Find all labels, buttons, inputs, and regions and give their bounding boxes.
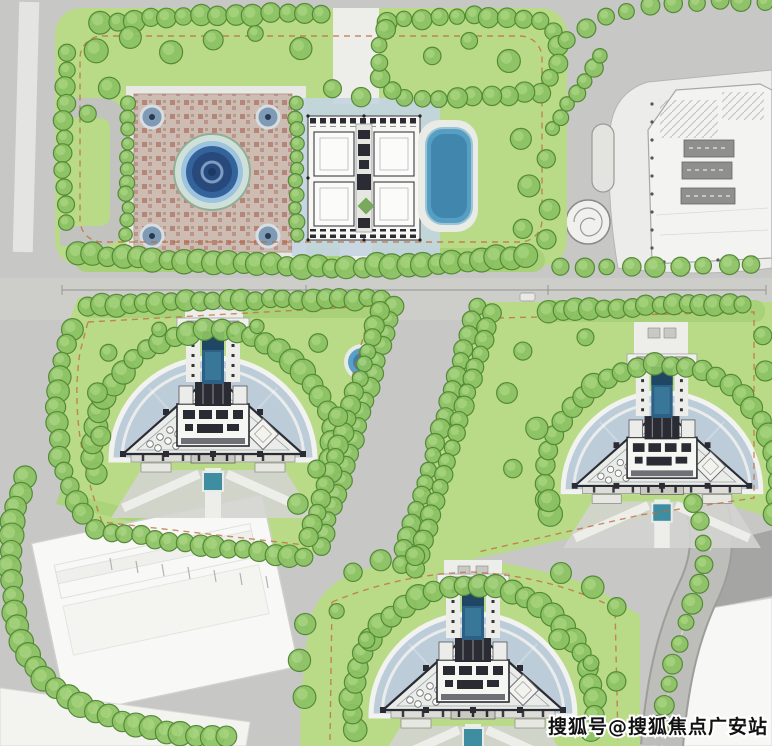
tree-highlight bbox=[3, 543, 14, 554]
tree-highlight bbox=[534, 86, 544, 96]
tree-highlight bbox=[180, 325, 192, 337]
tree-highlight bbox=[366, 331, 375, 340]
tree-highlight bbox=[354, 90, 364, 100]
office-tower-footprint bbox=[648, 84, 772, 264]
tree-highlight bbox=[281, 548, 292, 559]
tree-highlight bbox=[552, 56, 561, 65]
tree-highlight bbox=[293, 230, 300, 237]
tree-highlight bbox=[82, 107, 90, 115]
tree-highlight bbox=[56, 113, 66, 123]
tree-highlight bbox=[206, 32, 216, 42]
tree-highlight bbox=[367, 318, 377, 328]
tree-highlight bbox=[258, 335, 269, 346]
tree-highlight bbox=[542, 443, 551, 452]
tree-highlight bbox=[111, 15, 120, 24]
tree-highlight bbox=[434, 481, 442, 489]
tree-highlight bbox=[162, 253, 171, 262]
tree-highlight bbox=[461, 386, 469, 394]
tree-highlight bbox=[325, 261, 334, 270]
tree-highlight bbox=[52, 368, 63, 379]
tree-highlight bbox=[745, 258, 754, 267]
tree-highlight bbox=[355, 373, 363, 381]
tree-highlight bbox=[534, 14, 543, 23]
tree-highlight bbox=[291, 652, 302, 663]
tree-highlight bbox=[625, 260, 634, 269]
tree-highlight bbox=[674, 260, 684, 270]
tree-highlight bbox=[101, 249, 111, 259]
tree-highlight bbox=[268, 547, 278, 557]
tree-highlight bbox=[646, 355, 657, 366]
tree-highlight bbox=[694, 514, 703, 523]
central-fountain bbox=[174, 134, 250, 210]
tree-highlight bbox=[758, 363, 768, 373]
tree-highlight bbox=[148, 533, 157, 542]
tree-highlight bbox=[190, 252, 202, 264]
tree-highlight bbox=[319, 291, 329, 301]
tree-highlight bbox=[442, 394, 452, 404]
tree-highlight bbox=[698, 558, 707, 567]
tree-highlight bbox=[194, 7, 205, 18]
tree-highlight bbox=[395, 558, 404, 567]
tree-highlight bbox=[52, 449, 63, 460]
tree-highlight bbox=[290, 496, 300, 506]
tree-highlight bbox=[760, 426, 772, 438]
tree-highlight bbox=[122, 29, 133, 40]
tree-highlight bbox=[52, 432, 62, 442]
tree-highlight bbox=[518, 590, 528, 600]
tree-highlight bbox=[502, 89, 512, 99]
tree-highlight bbox=[177, 10, 186, 19]
tree-highlight bbox=[373, 304, 383, 314]
tree-highlight bbox=[500, 10, 510, 20]
tree-highlight bbox=[429, 494, 438, 503]
tree-highlight bbox=[329, 451, 338, 460]
tree-highlight bbox=[450, 426, 459, 435]
tree-highlight bbox=[65, 321, 76, 332]
tree-highlight bbox=[276, 292, 285, 301]
tree-highlight bbox=[427, 449, 435, 457]
tree-highlight bbox=[250, 28, 258, 36]
tree-highlight bbox=[517, 84, 527, 94]
tree-highlight bbox=[443, 253, 455, 265]
tree-highlight bbox=[415, 488, 424, 497]
tree-highlight bbox=[49, 414, 60, 425]
tree-highlight bbox=[695, 363, 705, 373]
tree-highlight bbox=[9, 618, 20, 629]
tree-highlight bbox=[538, 477, 547, 486]
watermark-text: 搜狐号@搜狐焦点广安站 bbox=[548, 715, 768, 738]
tree-highlight bbox=[457, 399, 467, 409]
tree-highlight bbox=[332, 291, 342, 301]
tree-highlight bbox=[57, 464, 66, 473]
tree-highlight bbox=[423, 507, 433, 517]
tree-highlight bbox=[561, 34, 569, 42]
tree-highlight bbox=[553, 565, 563, 575]
tree-highlight bbox=[587, 690, 598, 701]
tree-highlight bbox=[744, 399, 755, 410]
tree-highlight bbox=[530, 595, 543, 608]
tree-highlight bbox=[312, 388, 323, 399]
tree-highlight bbox=[457, 579, 467, 589]
tree-highlight bbox=[600, 10, 608, 18]
tree-highlight bbox=[373, 552, 384, 563]
tree-highlight bbox=[314, 492, 324, 502]
tree-highlight bbox=[293, 40, 304, 51]
tree-highlight bbox=[540, 303, 551, 314]
tree-highlight bbox=[722, 257, 732, 267]
tree-highlight bbox=[579, 76, 586, 83]
tree-highlight bbox=[571, 87, 579, 95]
tree-highlight bbox=[501, 52, 512, 63]
tree-highlight bbox=[529, 420, 540, 431]
tree-highlight bbox=[462, 328, 472, 338]
tree-highlight bbox=[122, 152, 129, 159]
tree-highlight bbox=[516, 344, 525, 353]
site-plan: 搜狐号@搜狐焦点广安站 bbox=[0, 0, 772, 746]
tree-highlight bbox=[452, 11, 460, 19]
tree-highlight bbox=[175, 252, 187, 264]
tree-highlight bbox=[426, 49, 435, 58]
tree-highlight bbox=[292, 152, 298, 158]
tree-highlight bbox=[55, 354, 64, 363]
tree-highlight bbox=[443, 579, 454, 590]
tree-highlight bbox=[219, 729, 229, 739]
tree-highlight bbox=[419, 477, 427, 485]
tree-highlight bbox=[134, 528, 143, 537]
tree-highlight bbox=[585, 376, 597, 388]
tree-highlight bbox=[554, 260, 563, 269]
tree-highlight bbox=[331, 438, 341, 448]
tree-highlight bbox=[6, 589, 16, 599]
tree-highlight bbox=[123, 296, 133, 306]
tree-highlight bbox=[450, 90, 460, 100]
tree-highlight bbox=[56, 146, 65, 155]
tree-highlight bbox=[344, 398, 354, 408]
tree-highlight bbox=[503, 250, 514, 261]
tree-highlight bbox=[291, 216, 299, 224]
tree-highlight bbox=[410, 503, 418, 511]
tree-highlight bbox=[552, 631, 562, 641]
tree-highlight bbox=[305, 377, 315, 387]
tree-highlight bbox=[13, 632, 25, 644]
east-entrance bbox=[634, 322, 688, 358]
tree-highlight bbox=[71, 695, 84, 708]
tree-highlight bbox=[137, 296, 146, 305]
tree-highlight bbox=[206, 294, 215, 303]
tree-highlight bbox=[478, 333, 488, 343]
tree-highlight bbox=[473, 251, 485, 263]
tree-highlight bbox=[13, 485, 24, 496]
tree-highlight bbox=[468, 360, 477, 369]
tree-highlight bbox=[252, 544, 262, 554]
tree-highlight bbox=[548, 123, 555, 130]
tree-highlight bbox=[61, 64, 69, 72]
tree-highlight bbox=[17, 469, 28, 480]
tree-highlight bbox=[291, 203, 297, 209]
tree-highlight bbox=[35, 669, 47, 681]
tree-highlight bbox=[449, 369, 459, 379]
tree-highlight bbox=[361, 634, 369, 642]
tree-highlight bbox=[292, 164, 299, 171]
tree-highlight bbox=[446, 383, 455, 392]
tree-highlight bbox=[120, 188, 128, 196]
tree-highlight bbox=[481, 10, 491, 20]
tree-highlight bbox=[384, 609, 394, 619]
tree-highlight bbox=[305, 517, 315, 527]
tree-highlight bbox=[123, 124, 130, 131]
tree-highlight bbox=[416, 533, 426, 543]
tree-highlight bbox=[539, 232, 549, 242]
tree-highlight bbox=[555, 112, 563, 120]
tree-highlight bbox=[244, 7, 255, 18]
tree-highlight bbox=[555, 414, 565, 424]
tree-highlight bbox=[582, 300, 593, 311]
tree-highlight bbox=[461, 254, 471, 264]
tree-highlight bbox=[609, 674, 619, 684]
tree-highlight bbox=[193, 294, 203, 304]
tree-highlight bbox=[116, 247, 128, 259]
tree-highlight bbox=[468, 8, 477, 17]
tree-highlight bbox=[415, 12, 425, 22]
tree-highlight bbox=[305, 292, 316, 303]
tree-highlight bbox=[124, 203, 130, 209]
tree-highlight bbox=[485, 89, 495, 99]
tree-highlight bbox=[722, 296, 732, 306]
tree-highlight bbox=[102, 346, 110, 354]
tree-highlight bbox=[302, 530, 312, 540]
tree-highlight bbox=[517, 246, 529, 258]
tree-highlight bbox=[122, 177, 130, 185]
tree-highlight bbox=[583, 677, 594, 688]
tree-highlight bbox=[61, 217, 69, 225]
tree-highlight bbox=[296, 688, 307, 699]
tree-highlight bbox=[50, 383, 61, 394]
tree-highlight bbox=[290, 113, 297, 120]
tree-highlight bbox=[433, 10, 442, 19]
tree-highlight bbox=[326, 82, 335, 91]
tree-highlight bbox=[409, 588, 421, 600]
tree-highlight bbox=[149, 295, 160, 306]
tree-highlight bbox=[578, 260, 588, 270]
tree-highlight bbox=[249, 255, 260, 266]
tree-highlight bbox=[292, 123, 299, 130]
tree-highlight bbox=[485, 306, 494, 315]
tree-highlight bbox=[615, 365, 624, 374]
tree-highlight bbox=[471, 300, 479, 308]
tree-highlight bbox=[252, 321, 259, 328]
tree-highlight bbox=[154, 324, 161, 331]
tree-highlight bbox=[400, 529, 410, 539]
tree-highlight bbox=[517, 12, 526, 21]
tree-highlight bbox=[162, 535, 171, 544]
tree-highlight bbox=[264, 255, 275, 266]
tree-highlight bbox=[291, 98, 298, 105]
tree-highlight bbox=[655, 299, 664, 308]
tree-highlight bbox=[108, 297, 119, 308]
tree-highlight bbox=[311, 506, 320, 515]
tree-highlight bbox=[373, 71, 383, 81]
spiral-landscape-mound bbox=[566, 200, 610, 244]
tree-highlight bbox=[465, 313, 474, 322]
tree-highlight bbox=[709, 370, 719, 380]
tree-highlight bbox=[90, 385, 100, 395]
tree-highlight bbox=[271, 342, 282, 353]
tree-highlight bbox=[422, 521, 431, 530]
tree-highlight bbox=[123, 139, 129, 145]
tree-highlight bbox=[100, 707, 111, 718]
tree-highlight bbox=[229, 7, 239, 17]
tree-highlight bbox=[60, 97, 69, 106]
tree-highlight bbox=[664, 359, 673, 368]
tree-highlight bbox=[63, 479, 72, 488]
tree-highlight bbox=[319, 478, 328, 487]
tree-highlight bbox=[204, 728, 216, 740]
tree-highlight bbox=[126, 13, 137, 24]
tree-highlight bbox=[118, 527, 127, 536]
tree-highlight bbox=[291, 293, 300, 302]
tree-highlight bbox=[513, 131, 523, 141]
tree-highlight bbox=[121, 229, 128, 236]
tree-highlight bbox=[70, 244, 82, 256]
tree-highlight bbox=[163, 43, 174, 54]
tree-highlight bbox=[361, 291, 370, 300]
tree-highlight bbox=[58, 181, 66, 189]
tree-highlight bbox=[692, 577, 701, 586]
tree-highlight bbox=[210, 8, 220, 18]
tree-highlight bbox=[567, 301, 578, 312]
tree-highlight bbox=[298, 616, 309, 627]
tree-highlight bbox=[249, 294, 258, 303]
tree-highlight bbox=[165, 295, 174, 304]
tree-highlight bbox=[19, 646, 31, 658]
tree-highlight bbox=[143, 718, 155, 730]
tree-highlight bbox=[437, 468, 446, 477]
tree-highlight bbox=[94, 296, 105, 307]
traffic-island bbox=[592, 124, 614, 192]
tree-highlight bbox=[601, 261, 609, 269]
tree-highlight bbox=[310, 462, 319, 471]
tree-highlight bbox=[755, 414, 764, 423]
tree-highlight bbox=[638, 298, 648, 308]
tree-highlight bbox=[237, 543, 246, 552]
tree-highlight bbox=[408, 549, 418, 559]
tree-highlight bbox=[626, 301, 635, 310]
tree-highlight bbox=[338, 259, 349, 270]
tree-highlight bbox=[331, 409, 341, 419]
tree-highlight bbox=[196, 321, 207, 332]
tree-highlight bbox=[621, 5, 629, 13]
tree-highlight bbox=[222, 542, 231, 551]
tree-highlight bbox=[587, 61, 596, 70]
tree-highlight bbox=[315, 8, 324, 17]
exhibition-building bbox=[306, 114, 421, 241]
site-plan-drawing: 搜狐号@搜狐焦点广安站 bbox=[0, 0, 772, 746]
tree-highlight bbox=[123, 98, 130, 105]
tree-highlight bbox=[685, 596, 695, 606]
tree-highlight bbox=[698, 537, 706, 545]
tree-highlight bbox=[290, 175, 297, 182]
tree-highlight bbox=[143, 251, 155, 263]
tree-highlight bbox=[320, 403, 330, 413]
tree-highlight bbox=[178, 292, 189, 303]
tree-highlight bbox=[433, 421, 443, 431]
tree-highlight bbox=[426, 584, 436, 594]
tree-highlight bbox=[4, 572, 15, 583]
tree-highlight bbox=[455, 355, 463, 363]
tree-highlight bbox=[433, 93, 441, 101]
tree-highlight bbox=[171, 724, 183, 736]
tree-highlight bbox=[312, 336, 321, 345]
tree-highlight bbox=[310, 258, 321, 269]
tree-highlight bbox=[487, 248, 499, 260]
tree-highlight bbox=[230, 325, 240, 335]
tree-highlight bbox=[736, 387, 747, 398]
tree-highlight bbox=[291, 189, 298, 196]
tree-highlight bbox=[59, 132, 67, 140]
tree-highlight bbox=[106, 526, 115, 535]
tree-highlight bbox=[280, 259, 290, 269]
tree-highlight bbox=[487, 577, 499, 589]
tree-highlight bbox=[598, 302, 607, 311]
tree-highlight bbox=[674, 638, 682, 646]
tree-highlight bbox=[282, 6, 291, 15]
tree-highlight bbox=[398, 13, 406, 21]
tree-highlight bbox=[544, 71, 552, 79]
tree-highlight bbox=[580, 21, 589, 30]
tree-highlight bbox=[373, 56, 381, 64]
tree-highlight bbox=[686, 496, 695, 505]
tree-highlight bbox=[475, 348, 483, 356]
tree-highlight bbox=[347, 292, 358, 303]
tree-highlight bbox=[453, 414, 462, 423]
tree-highlight bbox=[362, 346, 370, 354]
tree-highlight bbox=[115, 364, 127, 376]
tree-highlight bbox=[1, 558, 13, 570]
tree-highlight bbox=[542, 202, 552, 212]
tree-highlight bbox=[81, 299, 90, 308]
tree-highlight bbox=[439, 410, 448, 419]
tree-highlight bbox=[346, 565, 355, 574]
tree-highlight bbox=[56, 164, 64, 172]
tree-highlight bbox=[88, 522, 98, 532]
tree-highlight bbox=[69, 493, 80, 504]
tree-highlight bbox=[554, 618, 566, 630]
tree-highlight bbox=[122, 164, 129, 171]
tree-highlight bbox=[423, 464, 431, 472]
tree-highlight bbox=[331, 605, 339, 613]
tree-highlight bbox=[101, 80, 112, 91]
tree-highlight bbox=[447, 442, 455, 450]
tree-highlight bbox=[189, 728, 200, 739]
tree-highlight bbox=[92, 14, 103, 25]
tree-highlight bbox=[193, 538, 204, 549]
tree-highlight bbox=[60, 337, 70, 347]
tree-highlight bbox=[504, 583, 516, 595]
tree-highlight bbox=[159, 11, 169, 21]
tree-highlight bbox=[630, 360, 640, 370]
tree-highlight bbox=[397, 542, 406, 551]
tree-highlight bbox=[405, 516, 414, 525]
tree-highlight bbox=[428, 436, 437, 445]
tree-highlight bbox=[663, 678, 671, 686]
tree-highlight bbox=[8, 499, 19, 510]
tree-highlight bbox=[544, 606, 556, 618]
tree-highlight bbox=[756, 329, 765, 338]
tree-highlight bbox=[5, 603, 17, 615]
tree-highlight bbox=[88, 42, 100, 54]
tree-highlight bbox=[386, 84, 395, 93]
tree-highlight bbox=[58, 79, 68, 89]
